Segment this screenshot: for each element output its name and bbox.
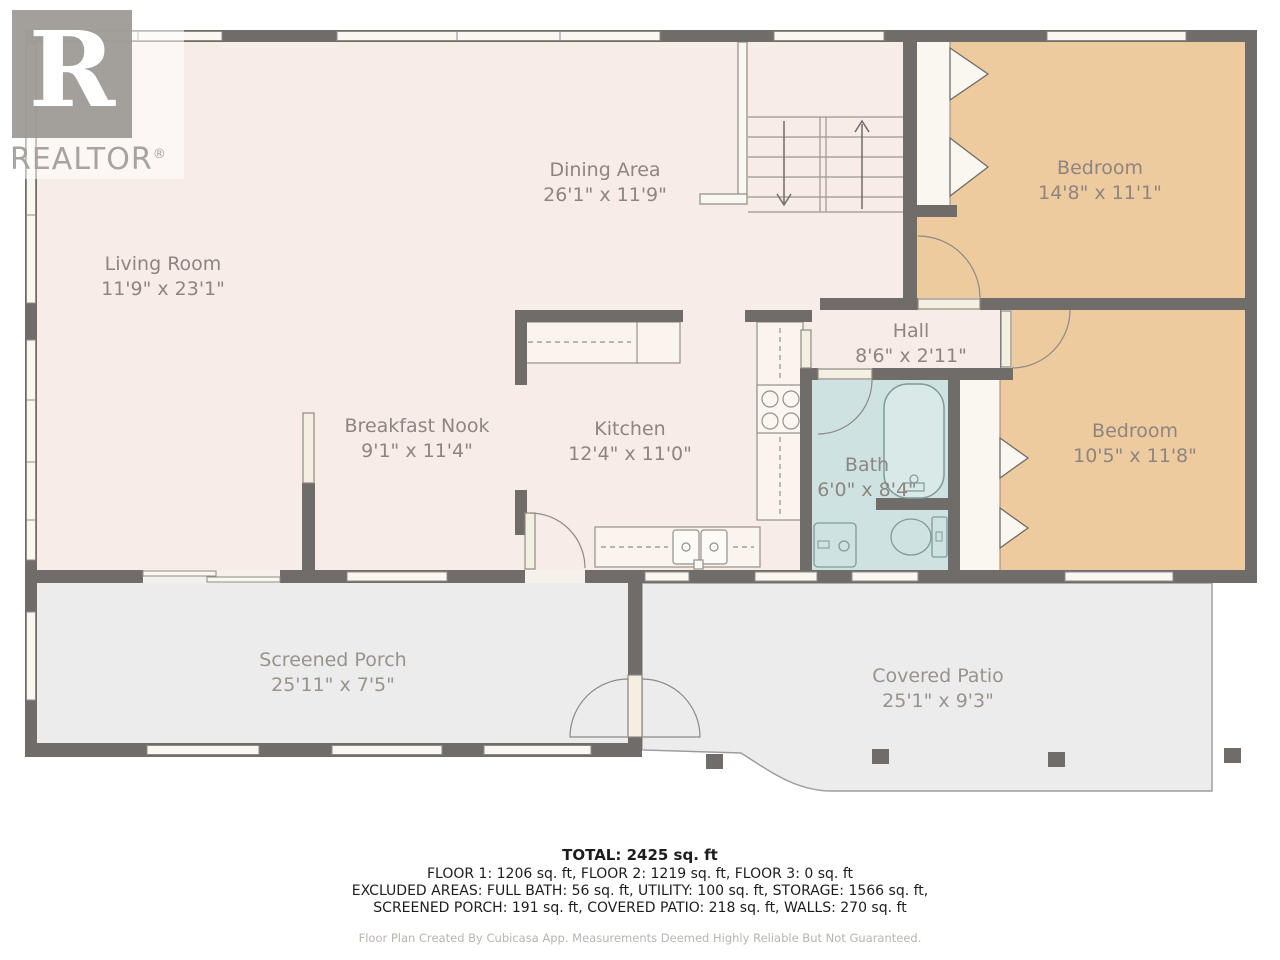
room-label-bedroom-1: Bedroom 14'8" x 11'1" bbox=[1038, 156, 1162, 206]
room-label-bedroom-2: Bedroom 10'5" x 11'8" bbox=[1073, 419, 1197, 469]
realtor-logo: R REALTOR® bbox=[8, 6, 184, 179]
realtor-logo-mark: R bbox=[12, 10, 132, 138]
floor-areas bbox=[30, 30, 1257, 791]
registered-trademark-icon: ® bbox=[153, 147, 167, 162]
hall-pocket-door bbox=[801, 330, 811, 368]
toilet bbox=[891, 517, 947, 557]
bath-sink bbox=[814, 523, 856, 567]
summary-disclaimer: Floor Plan Created By Cubicasa App. Meas… bbox=[0, 931, 1280, 945]
floor-plan-drawing bbox=[0, 0, 1280, 960]
realtor-wordmark: REALTOR® bbox=[10, 142, 182, 177]
room-label-screened-porch: Screened Porch 25'11" x 7'5" bbox=[259, 648, 406, 698]
room-label-living-room: Living Room 11'9" x 23'1" bbox=[101, 252, 225, 302]
room-label-breakfast-nook: Breakfast Nook 9'1" x 11'4" bbox=[345, 414, 490, 464]
summary-excluded-2: SCREENED PORCH: 191 sq. ft, COVERED PATI… bbox=[0, 900, 1280, 917]
room-label-dining-area: Dining Area 26'1" x 11'9" bbox=[543, 158, 667, 208]
patio-post bbox=[1048, 752, 1065, 767]
summary-excluded-1: EXCLUDED AREAS: FULL BATH: 56 sq. ft, UT… bbox=[0, 883, 1280, 900]
realtor-r-icon: R bbox=[29, 18, 115, 122]
patio-post bbox=[872, 749, 889, 764]
summary-floors: FLOOR 1: 1206 sq. ft, FLOOR 2: 1219 sq. … bbox=[0, 866, 1280, 883]
room-label-bath: Bath 6'0" x 8'4" bbox=[817, 453, 917, 503]
floor-area-summary: TOTAL: 2425 sq. ft FLOOR 1: 1206 sq. ft,… bbox=[0, 846, 1280, 945]
room-label-hall: Hall 8'6" x 2'11" bbox=[855, 319, 967, 369]
patio-post bbox=[1224, 748, 1241, 763]
room-label-kitchen: Kitchen 12'4" x 11'0" bbox=[568, 417, 692, 467]
summary-total: TOTAL: 2425 sq. ft bbox=[0, 846, 1280, 864]
nook-wall-panel bbox=[303, 413, 314, 483]
patio-post bbox=[706, 754, 723, 769]
room-label-covered-patio: Covered Patio 25'1" x 9'3" bbox=[872, 664, 1004, 714]
floor-plan-page: Living Room 11'9" x 23'1" Dining Area 26… bbox=[0, 0, 1280, 960]
stove bbox=[757, 385, 803, 433]
